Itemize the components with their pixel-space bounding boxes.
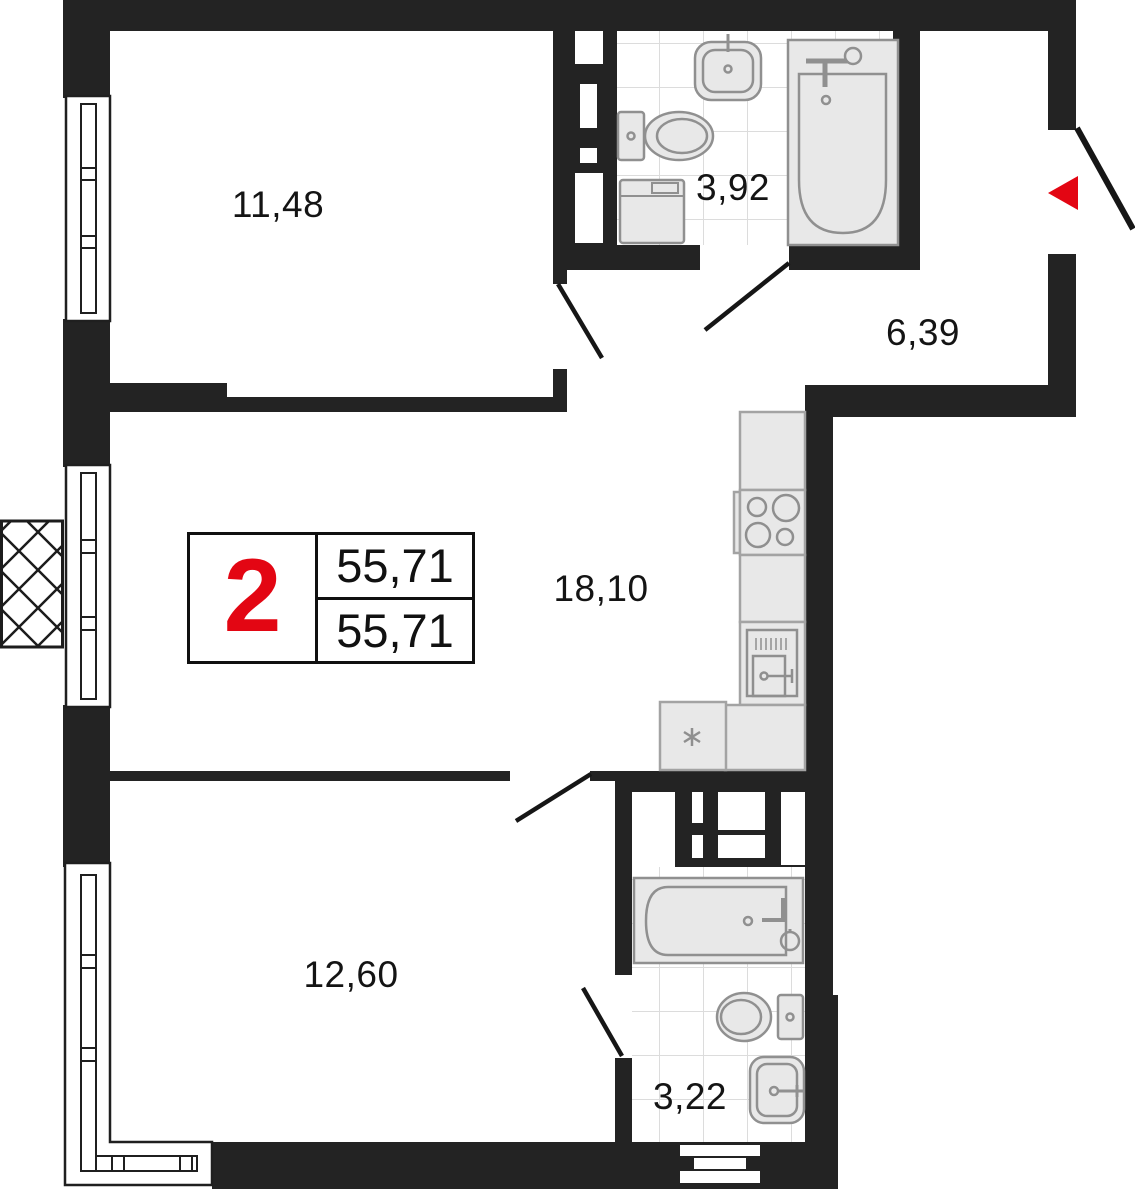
door-bath-top <box>705 263 789 330</box>
kitchen-sink-cabinet-icon <box>740 622 805 705</box>
badge-areas-cell: 55,71 55,71 <box>318 535 472 661</box>
vent-cutout <box>692 792 703 823</box>
wall-kitchen-right <box>805 417 833 997</box>
rooms-count: 2 <box>224 544 282 648</box>
vent-cutout <box>718 835 765 858</box>
wall-mid-divider-left <box>110 771 510 781</box>
window-room1 <box>66 96 110 321</box>
vent-cutout <box>580 148 597 163</box>
wall-bath-top-south-left <box>553 245 700 270</box>
area-label-hallway: 6,39 <box>886 312 960 354</box>
wall-bath-bottom-west-a <box>615 867 632 975</box>
vent-cutout <box>718 792 765 830</box>
vent-cutout <box>575 173 603 243</box>
balcony-hatch <box>2 521 63 647</box>
wall-right-top <box>1048 0 1076 130</box>
wall-bath-bottom-west-b <box>615 1058 632 1142</box>
wall-bath-top-south-right <box>789 245 893 270</box>
wall-bath-bottom-right <box>805 995 838 1189</box>
area-label-bathroom-bottom: 3,22 <box>653 1076 727 1118</box>
kitchen-counter-icon <box>740 555 805 622</box>
sink-icon <box>695 34 761 100</box>
vent-cutout <box>632 792 675 867</box>
total-area-value: 55,71 <box>318 535 472 597</box>
wall-mid-divider-right <box>590 771 615 781</box>
door-stub-a <box>553 263 567 284</box>
wall-left-a <box>63 0 110 98</box>
vent-cutout <box>580 84 597 128</box>
living-area-value: 55,71 <box>318 597 472 662</box>
wall-room1-south-thin <box>63 397 565 412</box>
bathtub-icon <box>634 878 803 963</box>
door-bath-bottom <box>583 988 622 1056</box>
apartment-badge: 2 55,71 55,71 <box>187 532 475 664</box>
area-label-bathroom-top: 3,92 <box>696 167 770 209</box>
washing-machine-icon <box>620 180 684 243</box>
bathtub-icon <box>788 40 898 245</box>
entrance-arrow-icon <box>1048 176 1078 210</box>
door-room1 <box>558 284 602 358</box>
vent-cutout <box>692 835 703 858</box>
kitchen-counter-icon <box>725 705 805 770</box>
vent-cutout <box>575 31 603 64</box>
toilet-icon <box>618 112 713 160</box>
kitchen-fixtures <box>660 412 805 770</box>
window-corner <box>65 863 212 1185</box>
area-label-bedroom-top: 11,48 <box>232 184 324 226</box>
area-label-kitchen-living: 18,10 <box>553 568 648 610</box>
window-living <box>66 465 110 707</box>
area-label-bedroom-bottom: 12,60 <box>303 954 398 996</box>
wall-hall-south <box>805 385 1076 417</box>
wall-left-c <box>63 705 110 867</box>
toilet-icon <box>717 993 803 1041</box>
door-room2 <box>516 774 591 821</box>
badge-rooms-cell: 2 <box>190 535 318 661</box>
vent-cutout <box>781 792 805 865</box>
door-entrance <box>1077 128 1133 229</box>
kitchen-counter-icon <box>740 412 805 490</box>
wall-top <box>63 0 1076 31</box>
sink-icon <box>750 1057 804 1123</box>
floor-plan: 11,48 3,92 6,39 18,10 12,60 3,22 2 55,71… <box>0 0 1135 1189</box>
